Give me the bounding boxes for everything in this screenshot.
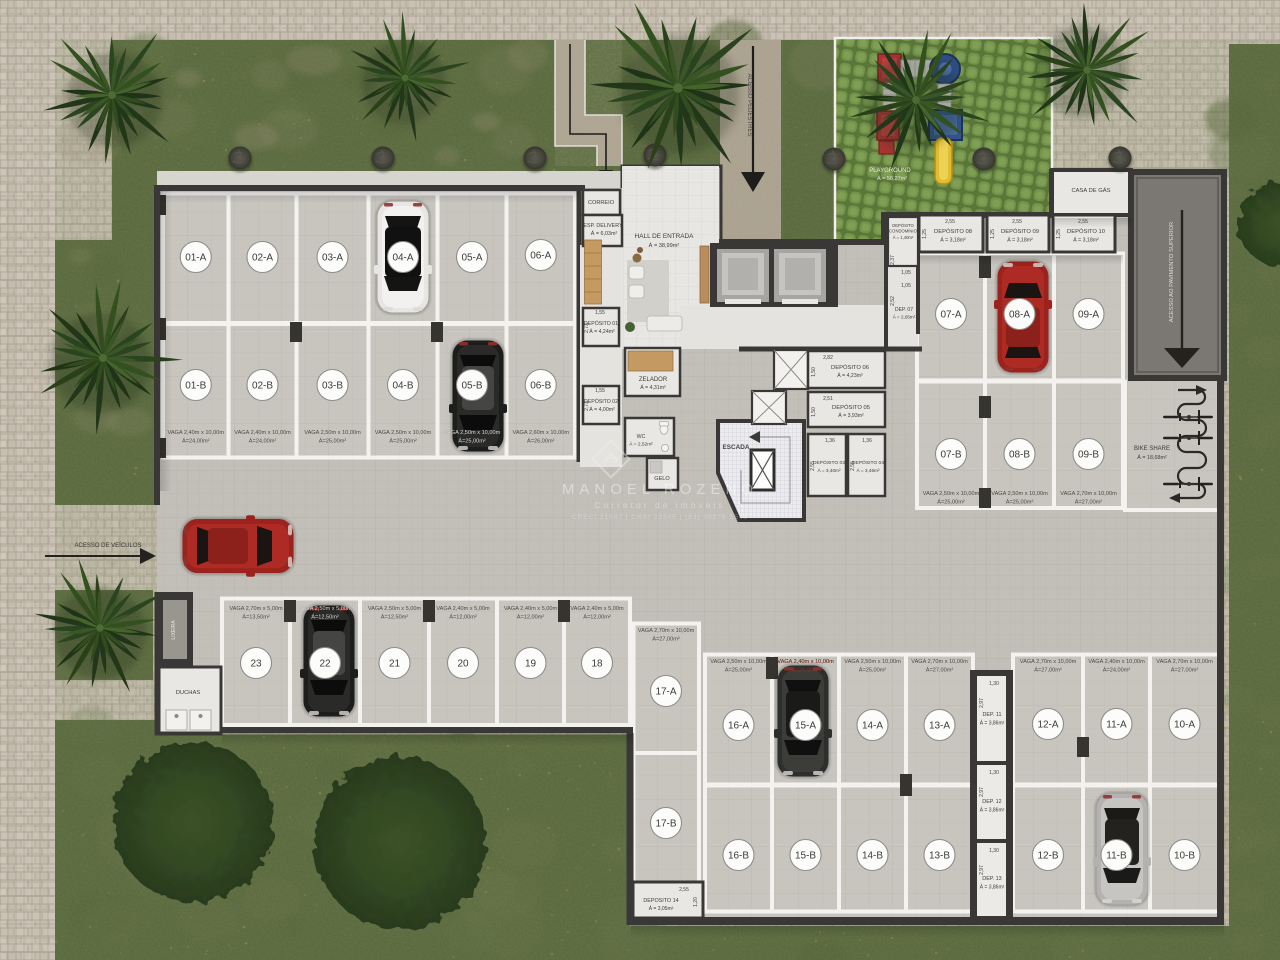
svg-text:CASA DE GÁS: CASA DE GÁS: [1072, 187, 1111, 194]
svg-text:Á = 3,86m²: Á = 3,86m²: [980, 807, 1005, 814]
svg-text:DEPÓSITO 01: DEPÓSITO 01: [584, 320, 618, 327]
svg-text:VAGA 2,40m x 5,00m: VAGA 2,40m x 5,00m: [570, 606, 624, 612]
svg-text:Á=26,00m²: Á=26,00m²: [527, 438, 555, 445]
svg-text:2,55: 2,55: [945, 219, 955, 225]
svg-text:Á=24,00m²: Á=24,00m²: [182, 438, 210, 445]
svg-text:Á=27,00m²: Á=27,00m²: [1171, 667, 1199, 674]
svg-text:04-A: 04-A: [392, 252, 413, 263]
svg-text:08-A: 08-A: [1009, 309, 1030, 320]
svg-text:DEPÓSITO 05: DEPÓSITO 05: [832, 404, 870, 411]
svg-text:Á = 4,31m²: Á = 4,31m²: [640, 384, 666, 391]
svg-text:Á = 6,03m²: Á = 6,03m²: [591, 230, 618, 237]
svg-text:DEPÓSITO 04: DEPÓSITO 04: [852, 459, 884, 466]
svg-text:Á = 18,68m²: Á = 18,68m²: [1137, 454, 1167, 461]
svg-text:2,52: 2,52: [890, 296, 896, 306]
svg-text:14-B: 14-B: [862, 850, 883, 861]
svg-text:2,97: 2,97: [979, 865, 985, 875]
svg-text:2,97: 2,97: [979, 698, 985, 708]
svg-text:16-A: 16-A: [728, 720, 749, 731]
svg-text:VAGA 2,40m x 10,00m: VAGA 2,40m x 10,00m: [168, 430, 225, 436]
svg-text:VAGA 2,70m x 10,00m: VAGA 2,70m x 10,00m: [1020, 659, 1077, 665]
svg-text:2,97: 2,97: [979, 787, 985, 797]
svg-text:VAGA 2,50m x 5,00m: VAGA 2,50m x 5,00m: [368, 606, 422, 612]
svg-text:13-A: 13-A: [929, 720, 950, 731]
svg-text:DEPÓSITO: DEPÓSITO: [892, 223, 914, 228]
svg-text:VAGA 2,50m x 10,00m: VAGA 2,50m x 10,00m: [444, 430, 501, 436]
svg-text:Á=12,00m²: Á=12,00m²: [517, 614, 545, 621]
svg-text:Á=27,00m²: Á=27,00m²: [1034, 667, 1062, 674]
svg-text:21: 21: [389, 658, 401, 669]
svg-text:VAGA 2,50m x 10,00m: VAGA 2,50m x 10,00m: [710, 659, 767, 665]
svg-text:17-A: 17-A: [655, 686, 676, 697]
svg-text:Á = 3,40m²: Á = 3,40m²: [817, 467, 840, 473]
svg-text:Á=25,00m²: Á=25,00m²: [458, 438, 486, 445]
svg-text:2,82: 2,82: [823, 355, 833, 361]
svg-text:20: 20: [457, 658, 469, 669]
svg-text:Á=25,00m²: Á=25,00m²: [859, 667, 887, 674]
svg-text:1,36: 1,36: [862, 438, 872, 444]
svg-text:2,37: 2,37: [890, 255, 896, 265]
svg-text:HALL DE ENTRADA: HALL DE ENTRADA: [635, 233, 694, 240]
svg-text:1,30: 1,30: [989, 770, 999, 776]
svg-text:1,20: 1,20: [693, 897, 699, 907]
svg-text:VAGA 2,40m x 10,00m: VAGA 2,40m x 10,00m: [1088, 659, 1145, 665]
svg-text:Á = 58,27m²: Á = 58,27m²: [877, 175, 907, 182]
svg-text:Á=12,50m²: Á=12,50m²: [381, 614, 409, 621]
svg-text:2,51: 2,51: [823, 396, 833, 402]
svg-text:PLAYGROUND: PLAYGROUND: [869, 168, 911, 174]
svg-text:Á = 3,18m²: Á = 3,18m²: [1007, 237, 1033, 244]
svg-text:06-A: 06-A: [530, 250, 551, 261]
svg-text:VAGA 2,40m x 10,00m: VAGA 2,40m x 10,00m: [777, 659, 834, 665]
svg-text:VAGA 2,50m x 5,00m: VAGA 2,50m x 5,00m: [298, 606, 352, 612]
svg-text:1,55: 1,55: [595, 388, 605, 394]
svg-text:Á = 3,46m²: Á = 3,46m²: [856, 467, 879, 473]
svg-text:Á=25,00m²: Á=25,00m²: [937, 499, 965, 506]
svg-text:1,05: 1,05: [901, 270, 911, 276]
svg-text:Á=13,50m²: Á=13,50m²: [242, 614, 270, 621]
svg-text:Á=27,00m²: Á=27,00m²: [926, 667, 954, 674]
svg-text:DEP. 07: DEP. 07: [895, 307, 913, 313]
svg-text:Á=27,00m²: Á=27,00m²: [1075, 499, 1103, 506]
svg-text:DEPÓSITO 09: DEPÓSITO 09: [1001, 228, 1039, 235]
svg-text:1,30: 1,30: [989, 681, 999, 687]
svg-text:Á=25,00m²: Á=25,00m²: [389, 438, 417, 445]
svg-text:Á = 3,05m²: Á = 3,05m²: [649, 905, 674, 912]
svg-text:Á=24,00m²: Á=24,00m²: [249, 438, 277, 445]
svg-text:LIXEIRA: LIXEIRA: [171, 620, 177, 640]
svg-text:Á = 3,18m²: Á = 3,18m²: [940, 237, 966, 244]
svg-text:12-B: 12-B: [1037, 850, 1058, 861]
svg-text:Á = 3,86m²: Á = 3,86m²: [980, 720, 1005, 727]
svg-text:ZELADOR: ZELADOR: [639, 377, 668, 383]
svg-text:09-B: 09-B: [1078, 449, 1099, 460]
svg-text:Á = 3,93m²: Á = 3,93m²: [838, 412, 864, 419]
svg-text:03-B: 03-B: [322, 380, 343, 391]
svg-text:16-B: 16-B: [728, 850, 749, 861]
svg-text:02-A: 02-A: [252, 252, 273, 263]
svg-text:ESCADA: ESCADA: [723, 444, 750, 451]
svg-text:01-B: 01-B: [185, 380, 206, 391]
svg-text:DUCHAS: DUCHAS: [176, 690, 201, 696]
svg-text:Á=25,00m²: Á=25,00m²: [1006, 499, 1034, 506]
svg-text:22: 22: [319, 658, 331, 669]
svg-text:CONDOMÍNIO: CONDOMÍNIO: [889, 229, 917, 234]
svg-text:1,30: 1,30: [989, 848, 999, 854]
svg-text:Á = 4,24m²: Á = 4,24m²: [589, 328, 615, 335]
svg-text:Á = 2,52m²: Á = 2,52m²: [629, 441, 653, 448]
svg-text:VAGA 2,50m x 10,00m: VAGA 2,50m x 10,00m: [375, 430, 432, 436]
svg-text:14-A: 14-A: [862, 720, 883, 731]
svg-text:CORREIO: CORREIO: [588, 200, 615, 206]
svg-text:VAGA 2,50m x 10,00m: VAGA 2,50m x 10,00m: [844, 659, 901, 665]
svg-text:VAGA 2,70m x 10,00m: VAGA 2,70m x 10,00m: [638, 628, 695, 634]
svg-text:Á=24,00m²: Á=24,00m²: [1103, 667, 1131, 674]
svg-text:DEPÓSITO 02: DEPÓSITO 02: [584, 398, 618, 405]
svg-text:1,25: 1,25: [922, 229, 928, 239]
svg-text:WC: WC: [637, 434, 646, 440]
svg-text:11-A: 11-A: [1106, 719, 1127, 730]
svg-text:Á = 4,23m²: Á = 4,23m²: [837, 372, 863, 379]
svg-text:18: 18: [591, 658, 603, 669]
svg-text:12-A: 12-A: [1037, 719, 1058, 730]
svg-text:10-B: 10-B: [1174, 850, 1195, 861]
svg-text:08-B: 08-B: [1009, 449, 1030, 460]
svg-text:VAGA 2,70m x 10,00m: VAGA 2,70m x 10,00m: [911, 659, 968, 665]
svg-text:2,55: 2,55: [679, 887, 689, 893]
svg-text:Á=12,00m²: Á=12,00m²: [583, 614, 611, 621]
svg-text:VAGA 2,70m x 5,00m: VAGA 2,70m x 5,00m: [229, 606, 283, 612]
svg-text:VAGA 2,50m x 10,00m: VAGA 2,50m x 10,00m: [923, 491, 980, 497]
svg-text:MANOEL ROZENO: MANOEL ROZENO: [562, 481, 758, 498]
svg-text:ACESSO AO PAVIMENTO SUPERIOR: ACESSO AO PAVIMENTO SUPERIOR: [1169, 222, 1175, 323]
svg-text:05-A: 05-A: [461, 252, 482, 263]
svg-text:1,05: 1,05: [901, 283, 911, 289]
svg-text:ESP. DELIVERY: ESP. DELIVERY: [584, 223, 623, 229]
svg-text:Á = 2,65m²: Á = 2,65m²: [893, 314, 916, 320]
svg-text:DEP. 12: DEP. 12: [982, 799, 1001, 805]
svg-text:VAGA 2,50m x 10,00m: VAGA 2,50m x 10,00m: [991, 491, 1048, 497]
svg-text:1,25: 1,25: [1056, 229, 1062, 239]
svg-text:DEPÓSITO 08: DEPÓSITO 08: [934, 228, 972, 235]
svg-text:06-B: 06-B: [530, 380, 551, 391]
svg-text:10-A: 10-A: [1174, 719, 1195, 730]
svg-text:DEPÓSITO 06: DEPÓSITO 06: [831, 364, 869, 371]
svg-text:01-A: 01-A: [185, 252, 206, 263]
svg-text:07-A: 07-A: [940, 309, 961, 320]
svg-text:Á=12,00m²: Á=12,00m²: [449, 614, 477, 621]
svg-text:ACESSO DE VEÍCULOS: ACESSO DE VEÍCULOS: [74, 542, 141, 549]
svg-text:Á = 38,99m²: Á = 38,99m²: [649, 242, 680, 249]
svg-text:04-B: 04-B: [392, 380, 413, 391]
svg-text:DEPOSITO 14: DEPOSITO 14: [643, 898, 678, 904]
svg-text:VAGA 2,40m x 10,00m: VAGA 2,40m x 10,00m: [234, 430, 291, 436]
svg-text:ACESSO PEDESTRES: ACESSO PEDESTRES: [746, 73, 752, 136]
svg-text:VAGA 2,70m x 10,00m: VAGA 2,70m x 10,00m: [1156, 659, 1213, 665]
svg-text:1,25: 1,25: [990, 229, 996, 239]
svg-text:03-A: 03-A: [322, 252, 343, 263]
svg-text:Á=24,00m²: Á=24,00m²: [792, 667, 820, 674]
svg-text:15-A: 15-A: [795, 720, 816, 731]
svg-text:CRECI 31547 | CNAI 23345 | (83: CRECI 31547 | CNAI 23345 | (83) 98876-55…: [572, 514, 748, 521]
svg-text:2,55: 2,55: [1012, 219, 1022, 225]
svg-text:Á=25,00m²: Á=25,00m²: [725, 667, 753, 674]
svg-text:1,55: 1,55: [595, 310, 605, 316]
svg-text:15-B: 15-B: [795, 850, 816, 861]
svg-text:Á = 3,18m²: Á = 3,18m²: [1073, 237, 1099, 244]
svg-text:02-B: 02-B: [252, 380, 273, 391]
svg-text:11-B: 11-B: [1106, 850, 1127, 861]
svg-text:Á = 4,00m²: Á = 4,00m²: [589, 406, 615, 413]
svg-text:07-B: 07-B: [940, 449, 961, 460]
svg-text:23: 23: [250, 658, 262, 669]
svg-text:1,50: 1,50: [811, 407, 817, 417]
svg-text:Á = 3,86m²: Á = 3,86m²: [980, 884, 1005, 891]
svg-text:Corretor de imóveis: Corretor de imóveis: [594, 500, 725, 510]
svg-text:VAGA 2,40m x 5,00m: VAGA 2,40m x 5,00m: [504, 606, 558, 612]
svg-text:DEP. 11: DEP. 11: [983, 712, 1002, 718]
svg-text:Á=25,00m²: Á=25,00m²: [319, 438, 347, 445]
svg-text:1,50: 1,50: [811, 367, 817, 377]
svg-text:VAGA 2,70m x 10,00m: VAGA 2,70m x 10,00m: [1060, 491, 1117, 497]
svg-text:19: 19: [525, 658, 537, 669]
svg-text:09-A: 09-A: [1078, 309, 1099, 320]
svg-text:05-B: 05-B: [461, 380, 482, 391]
svg-text:DEPÓSITO 03: DEPÓSITO 03: [813, 459, 845, 466]
svg-text:DEP. 13: DEP. 13: [982, 876, 1001, 882]
svg-text:VAGA 2,60m x 10,00m: VAGA 2,60m x 10,00m: [513, 430, 570, 436]
svg-text:VAGA 2,40m x 5,00m: VAGA 2,40m x 5,00m: [436, 606, 490, 612]
svg-text:Á = 1,40m²: Á = 1,40m²: [893, 235, 914, 240]
svg-text:13-B: 13-B: [929, 850, 950, 861]
svg-text:Á=27,00m²: Á=27,00m²: [652, 636, 680, 643]
svg-text:1,36: 1,36: [825, 438, 835, 444]
svg-text:VAGA 2,50m x 10,00m: VAGA 2,50m x 10,00m: [304, 430, 361, 436]
svg-text:Á=12,50m²: Á=12,50m²: [311, 614, 339, 621]
svg-text:BIKE SHARE: BIKE SHARE: [1134, 446, 1170, 452]
svg-text:17-B: 17-B: [655, 818, 676, 829]
svg-text:DEPÓSITO 10: DEPÓSITO 10: [1067, 228, 1105, 235]
